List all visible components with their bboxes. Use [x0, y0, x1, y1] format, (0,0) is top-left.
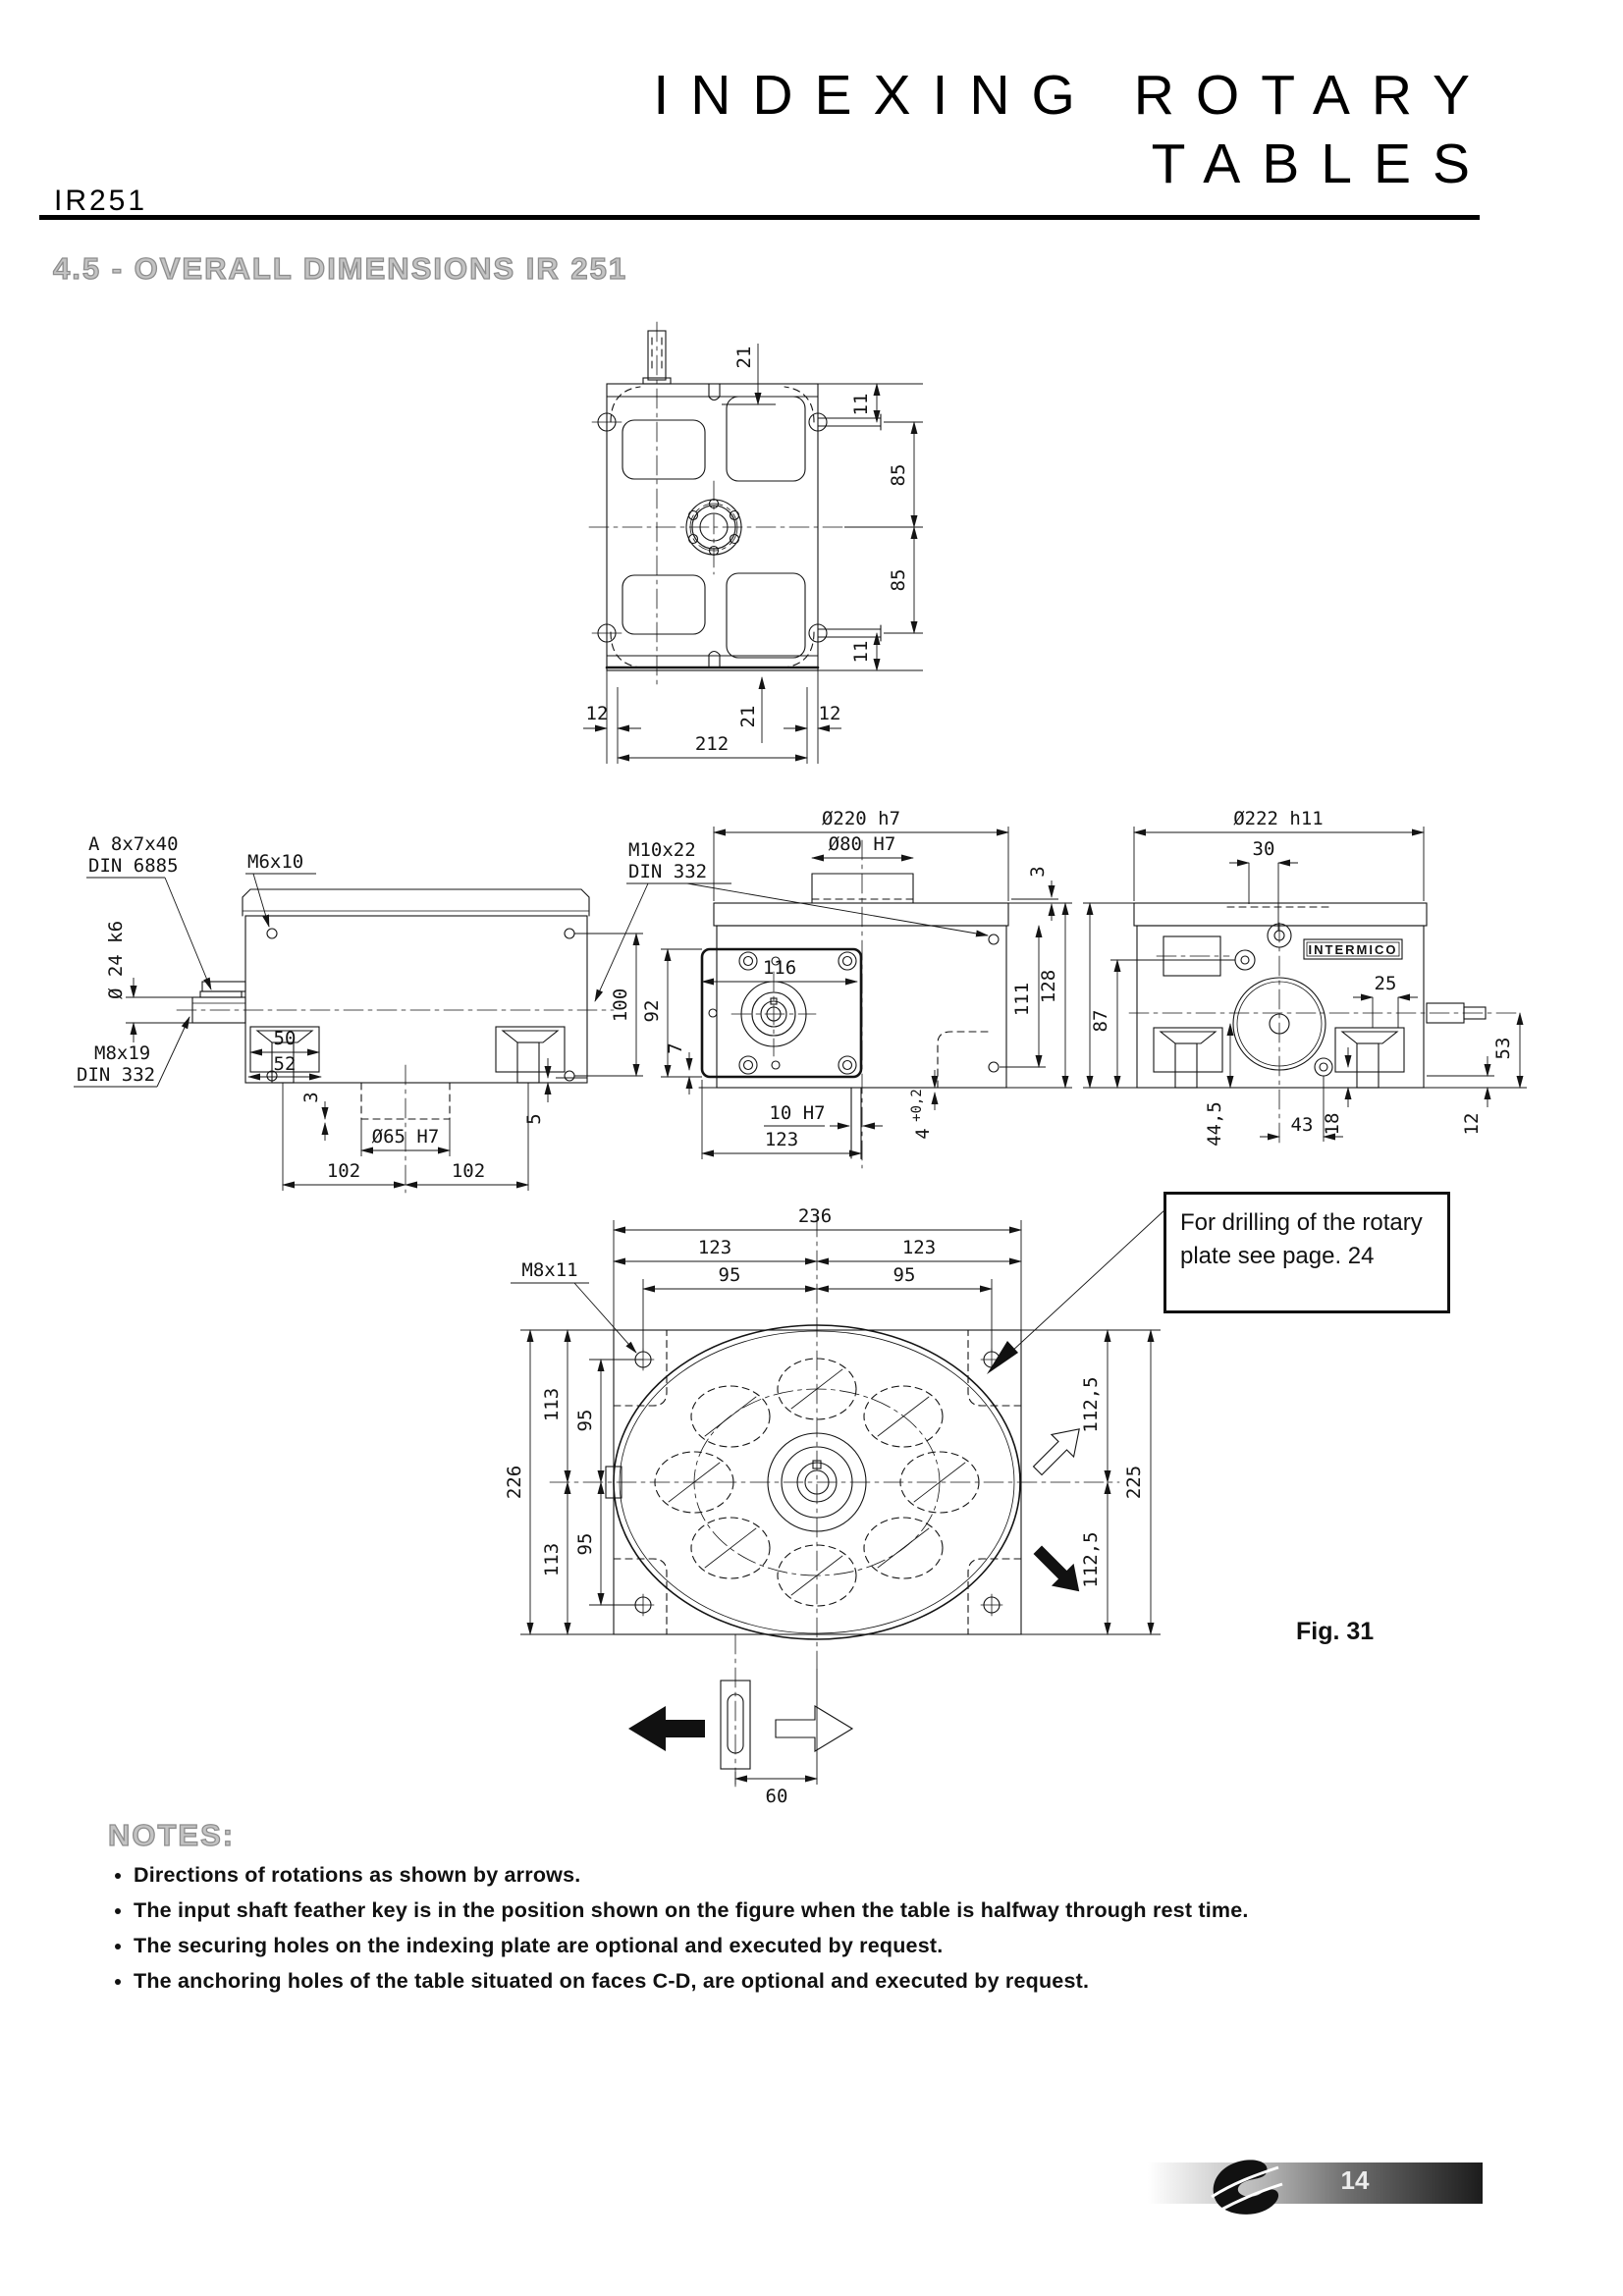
dim-12-right: 12	[819, 703, 841, 724]
dim-112-5-top: 112,5	[1080, 1376, 1102, 1432]
dim-116: 116	[763, 957, 796, 979]
dim-123-left: 123	[698, 1237, 731, 1258]
dim-12-rear: 12	[1461, 1113, 1483, 1136]
dim-123-side: 123	[765, 1129, 798, 1150]
shaft-rotation-arrow-right	[776, 1706, 852, 1751]
dim-4-tolerance: +0,2	[909, 1089, 925, 1122]
label-feather-key-din: DIN 6885	[88, 855, 179, 877]
dim-5: 5	[523, 1113, 545, 1124]
dim-21-top: 21	[733, 347, 755, 369]
dim-12-left: 12	[586, 703, 609, 724]
plate-view: 236 123 123 95 95 M8x11 226 113 113	[504, 1205, 1165, 1807]
dim-85-top: 85	[888, 464, 909, 487]
dim-53: 53	[1492, 1038, 1514, 1060]
note-item: Directions of rotations as shown by arro…	[134, 1863, 1559, 1888]
dim-92: 92	[641, 1000, 663, 1023]
dim-3-front: 3	[300, 1092, 322, 1102]
note-item: The securing holes on the indexing plate…	[134, 1934, 1559, 1958]
front-view: A 8x7x40 DIN 6885 M6x10 Ø 24 k6 M8x19 DI…	[74, 833, 643, 1193]
dim-95-left-top: 95	[574, 1410, 596, 1432]
dim-30: 30	[1253, 838, 1275, 860]
dim-225: 225	[1123, 1466, 1145, 1499]
dim-95-top-right: 95	[893, 1264, 916, 1286]
dim-43: 43	[1291, 1114, 1314, 1136]
callout-line1: For drilling of the rotary	[1180, 1206, 1434, 1240]
brand-nameplate: INTERMICO	[1309, 942, 1398, 957]
notes-list: Directions of rotations as shown by arro…	[106, 1863, 1559, 2004]
rear-view: Ø222 h11 30 INTERMICO	[1083, 808, 1527, 1147]
dim-95-top-left: 95	[719, 1264, 741, 1286]
note-item: The input shaft feather key is in the po…	[134, 1898, 1559, 1923]
dim-222h11: Ø222 h11	[1233, 808, 1324, 829]
dim-236: 236	[798, 1205, 832, 1227]
dim-3-side: 3	[1027, 866, 1049, 877]
dim-100: 100	[610, 988, 631, 1022]
label-m6x10: M6x10	[247, 851, 303, 873]
top-view: 21 11 85 85 11 12 12 21	[583, 322, 923, 764]
label-feather-key: A 8x7x40	[88, 833, 179, 855]
dim-10h7: 10 H7	[769, 1102, 825, 1124]
page-number: 14	[1325, 2165, 1384, 2196]
label-m8x19-din: DIN 332	[77, 1064, 155, 1086]
dim-113-top: 113	[541, 1388, 563, 1421]
dim-21-bottom: 21	[737, 706, 759, 728]
dim-11-bottom: 11	[850, 641, 872, 664]
brand-logo-icon	[1196, 2154, 1290, 2222]
label-m8x11: M8x11	[521, 1259, 577, 1281]
dim-123-right: 123	[902, 1237, 936, 1258]
note-item: The anchoring holes of the table situate…	[134, 1969, 1559, 1994]
label-m10x22-din: DIN 332	[628, 861, 707, 882]
dim-4: 4	[912, 1128, 934, 1139]
dim-65h7: Ø65 H7	[372, 1126, 440, 1148]
dim-44-5: 44,5	[1204, 1101, 1225, 1147]
dim-226: 226	[504, 1466, 525, 1499]
callout-line2: plate see page. 24	[1180, 1240, 1434, 1273]
dim-212: 212	[695, 733, 729, 755]
dim-113-bottom: 113	[541, 1543, 563, 1576]
dim-85-bottom: 85	[888, 569, 909, 592]
figure-label: Fig. 31	[1296, 1618, 1374, 1646]
dim-111: 111	[1011, 983, 1033, 1016]
label-m10x22: M10x22	[628, 839, 696, 861]
dim-128-side: 128	[1038, 970, 1059, 1003]
shaft-rotation-arrow-left	[628, 1706, 705, 1751]
label-m8x19: M8x19	[94, 1042, 150, 1064]
dim-7: 7	[665, 1042, 686, 1053]
dim-102-left: 102	[327, 1160, 360, 1182]
dim-50: 50	[274, 1028, 297, 1049]
notes-heading: NOTES:	[108, 1818, 235, 1853]
dim-52: 52	[274, 1053, 297, 1075]
dim-102-right: 102	[452, 1160, 485, 1182]
dim-18: 18	[1322, 1113, 1343, 1136]
side-view: Ø220 h7 Ø80 H7	[595, 808, 1072, 1168]
dim-60: 60	[766, 1786, 788, 1807]
label-shaft-diameter: Ø 24 k6	[105, 921, 127, 999]
dim-11-top: 11	[850, 394, 872, 416]
dim-95-left-bottom: 95	[574, 1533, 596, 1556]
dim-220h7: Ø220 h7	[822, 808, 900, 829]
dim-112-5-bottom: 112,5	[1080, 1531, 1102, 1587]
dim-87: 87	[1090, 1010, 1111, 1033]
manual-page: IR251 INDEXING ROTARY TABLES 4.5 - OVERA…	[0, 0, 1623, 2296]
callout-box: For drilling of the rotary plate see pag…	[1163, 1192, 1450, 1313]
dim-25: 25	[1375, 973, 1397, 994]
